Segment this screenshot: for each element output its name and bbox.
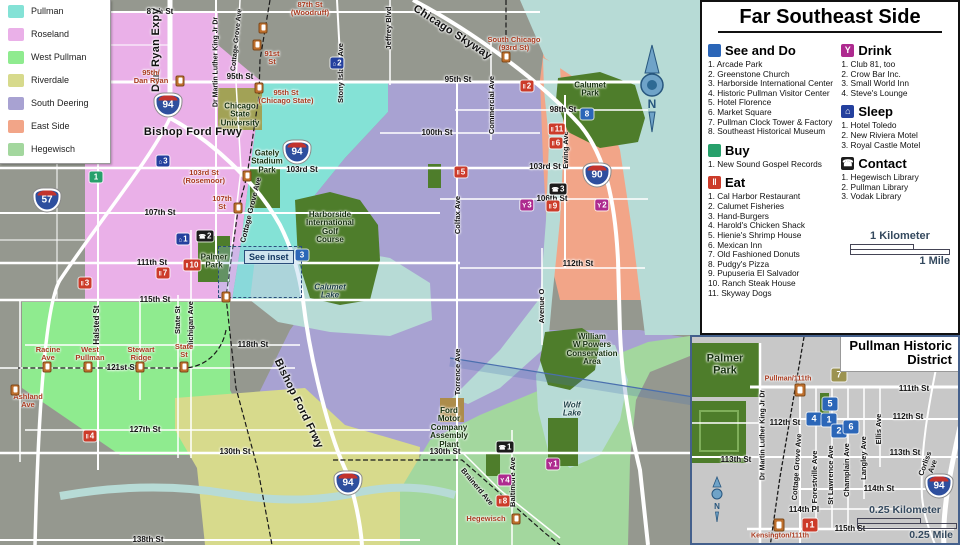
sleep-icon: ⌂: [841, 105, 854, 118]
small-park-2: [486, 452, 500, 476]
section-title: Contact: [858, 156, 906, 171]
section-header: YDrink: [841, 43, 952, 58]
poi-marker-see-5: 5: [823, 398, 838, 411]
legend-label: Hegewisch: [31, 144, 75, 154]
poi-marker-eat-6: ‖6: [550, 138, 563, 149]
eat-icon: ‖: [549, 205, 552, 211]
scale-bar: 1 Kilometer1 Mile: [850, 230, 950, 267]
poi-marker-drink-1: Y1: [546, 459, 559, 470]
contact-icon: ☎: [841, 157, 854, 170]
poi-marker-sleep-1: ⌂1: [176, 234, 189, 245]
eat-icon: ‖: [159, 272, 162, 278]
section-buy: Buy1. New Sound Gospel Records: [708, 143, 837, 170]
info-panel: Far Southeast Side See and Do1. Arcade P…: [700, 0, 960, 335]
legend-item-hegewisch: Hegewisch: [0, 138, 110, 161]
drink-icon: Y: [500, 479, 504, 485]
panel-column-right: YDrink1. Club 81, too2. Crow Bar Inc.3. …: [837, 37, 952, 298]
poi-marker-see-8: 8: [581, 109, 594, 120]
see-inset-label: See inset: [244, 250, 294, 264]
eat-icon: ‖: [81, 282, 84, 288]
legend-label: West Pullman: [31, 52, 86, 62]
street-label: Langley Ave: [860, 436, 868, 480]
legend-item-west-pullman: West Pullman: [0, 46, 110, 69]
train-station-icon: [255, 83, 264, 94]
eat-icon: ‖: [499, 500, 502, 506]
poi-marker-see-6: 6: [844, 421, 859, 434]
legend-item-south-deering: South Deering: [0, 92, 110, 115]
poi-marker-eat-2: ‖2: [521, 81, 534, 92]
train-station-icon: [176, 76, 185, 87]
title-rule: [718, 31, 942, 33]
train-station-icon: [512, 514, 521, 525]
map-stage: N See inset 87th St95th St95th St98th St…: [0, 0, 960, 545]
legend-item-east-side: East Side: [0, 115, 110, 138]
section-sleep: ⌂Sleep1. Hotel Toledo2. New Riviera Mote…: [841, 104, 952, 150]
legend-item-riverdale: Riverdale: [0, 69, 110, 92]
scale-mile: 1 Mile: [850, 255, 950, 267]
street-label: 114th St: [864, 485, 895, 493]
section-title: Sleep: [858, 104, 893, 119]
poi-marker-sleep-3: ⌂3: [156, 156, 169, 167]
street-label: 111th St: [899, 385, 929, 393]
inset-title: Pullman Historic District: [840, 337, 958, 372]
train-station-icon: [774, 519, 785, 532]
compass-n-label: N: [648, 97, 657, 111]
street-label: Dr Martin Luther King Jr Dr: [759, 390, 766, 480]
legend-label: South Deering: [31, 98, 89, 108]
legend-swatch: [8, 28, 24, 41]
eat-icon: ‖: [86, 435, 89, 441]
street-label: Forestville Ave: [811, 451, 819, 504]
poi-marker-eat-3: ‖3: [79, 278, 92, 289]
poi-marker-eat-1: ‖1: [803, 519, 818, 532]
poi-marker-contact-2: ☎2: [197, 231, 214, 242]
legend-swatch: [8, 120, 24, 133]
legend-swatch: [8, 97, 24, 110]
poi-marker-sleep-2: ⌂2: [330, 58, 343, 69]
section-contact: ☎Contact1. Hegewisch Library2. Pullman L…: [841, 156, 952, 202]
sleep-icon: ⌂: [332, 62, 336, 68]
poi-marker-buy-1: 1: [90, 172, 103, 183]
legend-swatch: [8, 74, 24, 87]
train-station-icon: [136, 362, 145, 373]
legend-item-roseland: Roseland: [0, 23, 110, 46]
poi-marker-eat-5: ‖5: [455, 167, 468, 178]
drink-icon: Y: [522, 204, 526, 210]
section-header: ⌂Sleep: [841, 104, 952, 119]
legend-label: East Side: [31, 121, 70, 131]
poi-marker-contact-1: ☎1: [497, 442, 514, 453]
poi-marker-see-3: 3: [296, 250, 309, 261]
street-label: 113th St: [890, 449, 921, 457]
train-station-icon: [253, 40, 262, 51]
inset-scale-km: 0.25 Kilometer: [857, 504, 953, 516]
section-title: See and Do: [725, 43, 796, 58]
drink-icon: Y: [597, 204, 601, 210]
section-see: See and Do1. Arcade Park2. Greenstone Ch…: [708, 43, 837, 137]
street-label: 112th St: [770, 419, 801, 427]
section-header: See and Do: [708, 43, 837, 58]
legend-label: Riverdale: [31, 75, 69, 85]
legend-swatch: [8, 5, 24, 18]
list-item: 11. Skyway Dogs: [708, 289, 837, 299]
scale-km: 1 Kilometer: [850, 230, 950, 242]
train-station-icon: [243, 171, 252, 182]
poi-marker-drink-2: Y2: [595, 200, 608, 211]
section-header: ☎Contact: [841, 156, 952, 171]
eat-icon: ‖: [551, 128, 554, 134]
street-label: 112th St: [893, 413, 924, 421]
station-label: Pullman/111th: [765, 375, 812, 382]
drink-icon: Y: [841, 44, 854, 57]
list-item: 3. Royal Castle Motel: [841, 141, 952, 151]
poi-marker-eat-7: ‖7: [157, 268, 170, 279]
inset-scale-bar: 0.25 Kilometer 0.25 Mile: [857, 504, 953, 541]
section-eat: ‖Eat1. Cal Harbor Restaurant2. Calumet F…: [708, 175, 837, 298]
eat-icon: ‖: [708, 176, 721, 189]
panel-column-left: See and Do1. Arcade Park2. Greenstone Ch…: [708, 37, 837, 298]
poi-marker-eat-9: ‖9: [547, 201, 560, 212]
section-title: Buy: [725, 143, 750, 158]
csu-campus-area: [218, 88, 262, 130]
train-station-icon: [84, 362, 93, 373]
train-station-icon: [180, 362, 189, 373]
ford-plant-area: [440, 398, 464, 422]
train-station-icon: [795, 384, 806, 397]
poi-marker-eat-4: ‖4: [84, 431, 97, 442]
list-item: 3. Vodak Library: [841, 192, 952, 202]
legend-swatch: [8, 51, 24, 64]
contact-icon: ☎: [199, 235, 206, 241]
buy-icon: [708, 144, 721, 157]
drink-icon: Y: [548, 463, 552, 469]
train-station-icon: [259, 23, 268, 34]
train-station-icon: [234, 203, 243, 214]
legend-label: Roseland: [31, 29, 69, 39]
street-label: Ellis Ave: [875, 414, 883, 445]
street-label: 114th Pl: [789, 506, 819, 514]
train-station-icon: [222, 292, 231, 303]
street-label: 113th St: [721, 456, 752, 464]
legend-swatch: [8, 143, 24, 156]
poi-marker-contact-3: ☎3: [550, 184, 567, 195]
legend-panel: PullmanRoselandWest PullmanRiverdaleSout…: [0, 0, 111, 164]
section-title: Eat: [725, 175, 745, 190]
eat-icon: ‖: [457, 171, 460, 177]
poi-marker-eat-10: ‖10: [184, 260, 201, 271]
section-header: Buy: [708, 143, 837, 158]
poi-marker-eat-8: ‖8: [497, 496, 510, 507]
eat-icon: ‖: [523, 85, 526, 91]
sleep-icon: ⌂: [158, 160, 162, 166]
legend-item-pullman: Pullman: [0, 0, 110, 23]
inset-scale-mile: 0.25 Mile: [857, 529, 953, 541]
poi-marker-drink-4: Y4: [498, 475, 511, 486]
station-label: Kensington/111th: [751, 532, 809, 539]
see-icon: [708, 44, 721, 57]
section-header: ‖Eat: [708, 175, 837, 190]
list-item: 1. New Sound Gospel Records: [708, 160, 837, 170]
interstate-94-shield-icon: 94: [926, 475, 953, 498]
poi-marker-drink-3: Y3: [520, 200, 533, 211]
poi-marker-see-4: 4: [807, 413, 822, 426]
train-station-icon: [502, 52, 511, 63]
street-label: St Lawrence Ave: [827, 445, 835, 504]
inset-map: N 111th St112th St112th St113th St113th …: [690, 335, 960, 545]
train-station-icon: [43, 362, 52, 373]
street-label: Cottage Grove Ave: [791, 433, 804, 500]
area-label: Palmer Park: [707, 353, 744, 376]
contact-icon: ☎: [552, 188, 559, 194]
section-drink: YDrink1. Club 81, too2. Crow Bar Inc.3. …: [841, 43, 952, 98]
section-title: Drink: [858, 43, 891, 58]
poi-marker-eat-11: ‖11: [549, 124, 565, 135]
page-title: Far Southeast Side: [702, 6, 958, 29]
train-station-icon: [11, 385, 20, 396]
legend-label: Pullman: [31, 6, 64, 16]
street-label: Champlain Ave: [843, 443, 851, 497]
eat-icon: ‖: [805, 524, 808, 530]
eat-icon: ‖: [552, 142, 555, 148]
eat-icon: ‖: [186, 264, 189, 270]
sleep-icon: ⌂: [178, 238, 182, 244]
list-item: 4. Steve's Lounge: [841, 89, 952, 99]
contact-icon: ☎: [499, 446, 506, 452]
list-item: 8. Southeast Historical Museum: [708, 127, 837, 137]
